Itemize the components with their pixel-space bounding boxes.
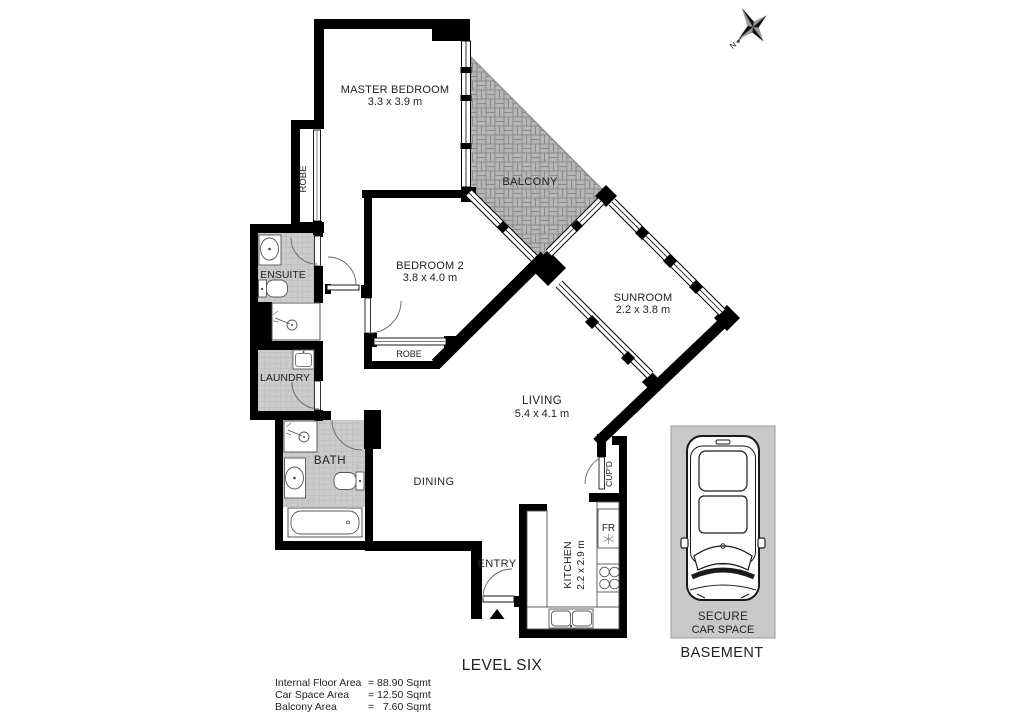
svg-text:= 88.90 Sqmt: = 88.90 Sqmt [368,677,431,689]
svg-text:LEVEL SIX: LEVEL SIX [462,657,543,674]
svg-text:MASTER BEDROOM: MASTER BEDROOM [341,84,450,96]
svg-text:5.4 x 4.1 m: 5.4 x 4.1 m [515,408,569,420]
svg-text:DINING: DINING [414,476,455,488]
svg-text:ROBE: ROBE [396,349,422,359]
svg-text:Internal Floor Area: Internal Floor Area [275,677,362,689]
svg-text:2.2 x 3.8 m: 2.2 x 3.8 m [616,304,670,316]
svg-text:CAR SPACE: CAR SPACE [692,624,755,636]
svg-text:ENTRY: ENTRY [477,558,516,570]
svg-text:FR: FR [602,523,615,534]
svg-text:LAUNDRY: LAUNDRY [260,372,310,384]
svg-text:LIVING: LIVING [522,395,562,407]
svg-text:2.2 x 2.9 m: 2.2 x 2.9 m [576,540,587,589]
svg-text:ENSUITE: ENSUITE [260,269,306,281]
svg-text:BASEMENT: BASEMENT [681,645,764,661]
svg-text:Balcony Area: Balcony Area [275,701,337,713]
svg-text:Car Space Area: Car Space Area [275,689,349,701]
svg-text:CUP'D: CUP'D [604,461,614,487]
svg-text:BATH: BATH [314,455,346,467]
svg-text:SECURE: SECURE [698,611,748,623]
svg-text:= 7.60 Sqmt: = 7.60 Sqmt [368,701,431,713]
svg-text:= 12.50 Sqmt: = 12.50 Sqmt [368,689,431,701]
svg-text:KITCHEN: KITCHEN [562,541,574,589]
svg-text:SUNROOM: SUNROOM [614,292,673,304]
svg-text:BEDROOM 2: BEDROOM 2 [396,260,464,272]
svg-text:3.3 x 3.9 m: 3.3 x 3.9 m [368,96,422,108]
svg-text:BALCONY: BALCONY [502,176,558,188]
svg-text:3.8 x 4.0 m: 3.8 x 4.0 m [403,272,457,284]
svg-text:ROBE: ROBE [298,166,309,193]
